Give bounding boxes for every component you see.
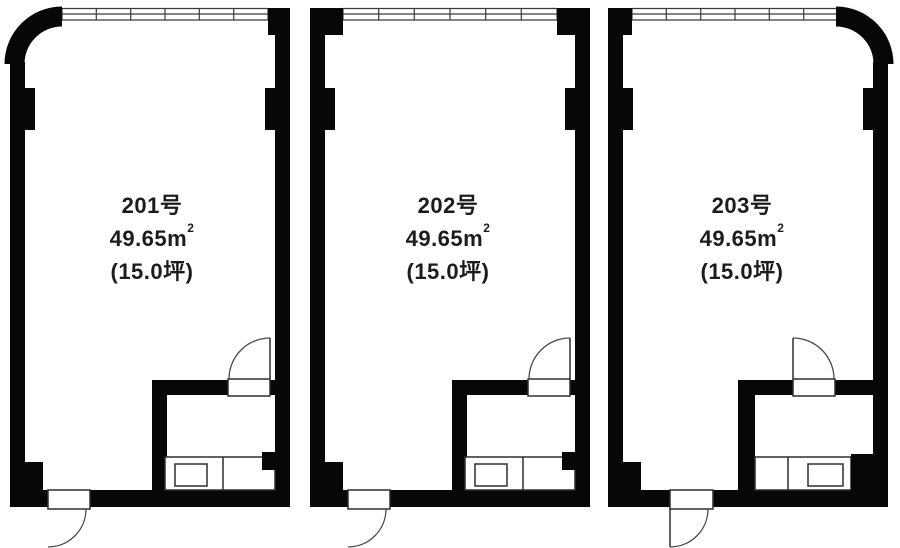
- entrance-doorway: [670, 490, 713, 509]
- right-wall-stub: [275, 33, 290, 64]
- bottom-wall-left: [608, 490, 670, 507]
- unit-202-label: 202号 49.65m2 (15.0坪): [406, 189, 491, 288]
- bath-partition-top-right: [835, 380, 888, 395]
- room-tsubo: (15.0坪): [406, 255, 491, 288]
- right-wall-stub: [575, 33, 590, 64]
- room-number: 203号: [700, 189, 785, 222]
- bottom-wall-right: [713, 490, 888, 507]
- left-wall-stub: [310, 33, 325, 64]
- unit-201-label: 201号 49.65m2 (15.0坪): [110, 189, 195, 288]
- floor-plan-canvas: 201号 49.65m2 (15.0坪) 202号 49.65m2 (15.0坪…: [0, 0, 900, 548]
- corner-block-top-left: [310, 8, 343, 35]
- counter-right-notch: [851, 454, 875, 492]
- window-band: [632, 9, 838, 21]
- left-wall-stub: [608, 33, 623, 64]
- room-area: 49.65m2: [406, 222, 491, 255]
- corner-block-top-right: [557, 8, 590, 35]
- room-area: 49.65m2: [110, 222, 195, 255]
- window-band: [62, 9, 268, 21]
- room-number: 202号: [406, 189, 491, 222]
- room-tsubo: (15.0坪): [700, 255, 785, 288]
- room-tsubo: (15.0坪): [110, 255, 195, 288]
- right-pilaster: [863, 88, 888, 130]
- room-number: 201号: [110, 189, 195, 222]
- bath-door-swing-arc: [793, 338, 834, 379]
- left-pilaster: [608, 88, 633, 130]
- room-area: 49.65m2: [700, 222, 785, 255]
- unit-203-label: 203号 49.65m2 (15.0坪): [700, 189, 785, 288]
- corner-block-top-left: [608, 8, 632, 35]
- sink: [808, 464, 843, 486]
- bath-doorway: [793, 379, 835, 396]
- entrance-door-swing-arc: [670, 509, 708, 547]
- corner-block-top-right: [268, 8, 290, 35]
- bath-partition-top-left: [738, 380, 793, 395]
- rounded-corner-top-right: [836, 7, 894, 65]
- bath-partition-vertical: [738, 380, 755, 492]
- window-band: [343, 9, 557, 21]
- bottom-left-notch: [608, 462, 641, 492]
- rounded-corner-top-left: [5, 7, 63, 65]
